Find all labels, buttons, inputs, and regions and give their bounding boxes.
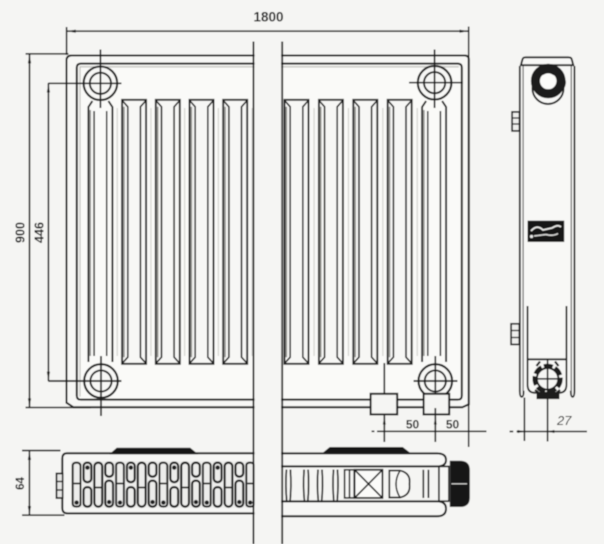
svg-text:27: 27 xyxy=(556,413,572,428)
svg-text:446: 446 xyxy=(33,222,47,243)
svg-text:50: 50 xyxy=(406,418,420,432)
svg-text:64: 64 xyxy=(15,477,27,490)
svg-text:50: 50 xyxy=(446,418,460,432)
svg-text:1800: 1800 xyxy=(253,10,283,25)
svg-text:900: 900 xyxy=(14,222,28,243)
